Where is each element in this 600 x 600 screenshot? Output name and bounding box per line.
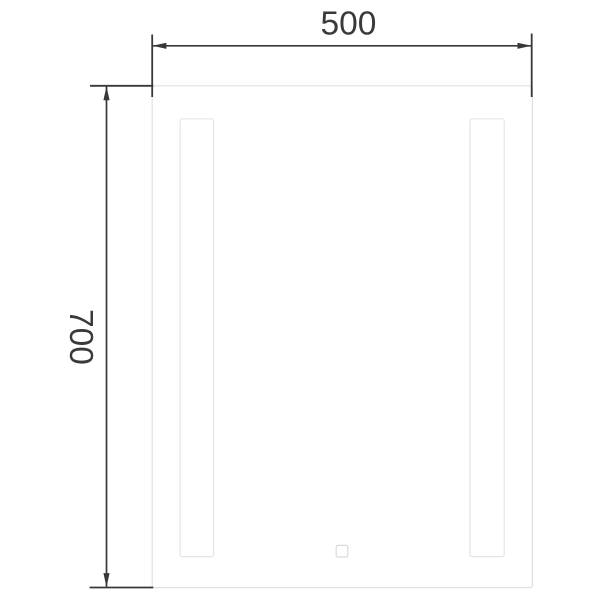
svg-text:700: 700 (62, 309, 99, 365)
svg-text:500: 500 (321, 6, 377, 43)
